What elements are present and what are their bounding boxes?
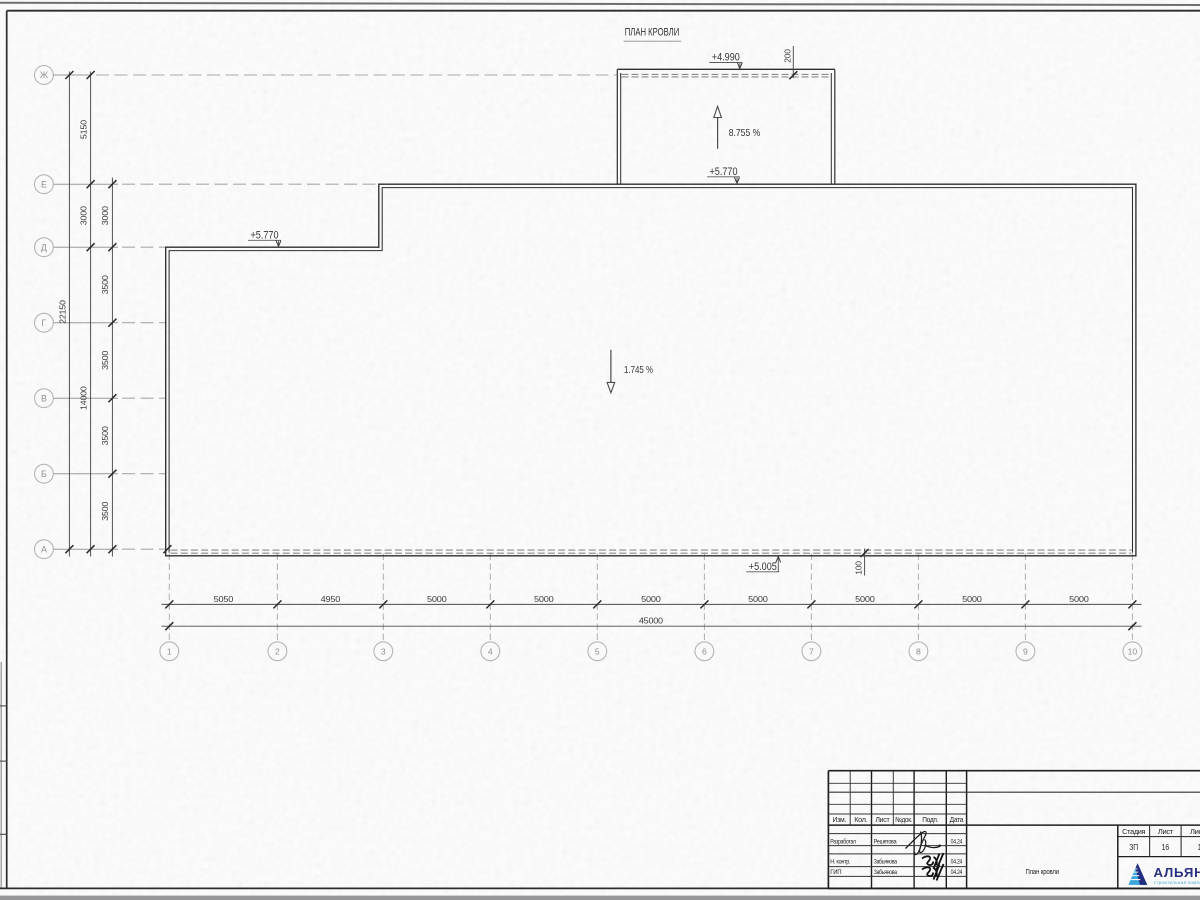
- svg-text:ЗП: ЗП: [1129, 843, 1138, 852]
- svg-text:5150: 5150: [80, 119, 89, 139]
- svg-text:строительная компания: строительная компания: [1154, 880, 1200, 885]
- svg-text:100: 100: [854, 560, 863, 574]
- svg-text:В: В: [41, 393, 47, 403]
- svg-text:10: 10: [1128, 647, 1138, 657]
- svg-text:Лист: Лист: [875, 815, 890, 824]
- svg-text:3500: 3500: [101, 275, 110, 295]
- svg-text:2: 2: [275, 647, 280, 657]
- svg-text:5: 5: [595, 647, 600, 657]
- svg-text:1: 1: [167, 647, 172, 657]
- svg-text:Изм.: Изм.: [833, 815, 847, 824]
- svg-text:16: 16: [1162, 843, 1170, 852]
- svg-text:Д: Д: [41, 242, 47, 252]
- svg-text:5000: 5000: [427, 595, 447, 604]
- svg-text:Лис: Лис: [1190, 829, 1200, 836]
- svg-text:1.745 %: 1.745 %: [624, 365, 653, 376]
- svg-text:Забьянова: Забьянова: [874, 857, 898, 865]
- svg-text:План кровли: План кровли: [1025, 869, 1059, 876]
- svg-text:5000: 5000: [855, 595, 875, 604]
- svg-text:5000: 5000: [962, 595, 982, 604]
- svg-text:3: 3: [381, 647, 386, 657]
- svg-text:8: 8: [916, 647, 921, 657]
- svg-text:Б: Б: [41, 469, 47, 479]
- svg-text:22150: 22150: [59, 300, 68, 324]
- svg-text:4: 4: [488, 647, 493, 657]
- svg-text:14000: 14000: [80, 386, 89, 410]
- svg-text:04.24: 04.24: [951, 858, 963, 865]
- svg-text:+5.005: +5.005: [749, 561, 777, 573]
- svg-text:АЛЬЯНС: АЛЬЯНС: [1154, 865, 1200, 880]
- svg-text:Кол.: Кол.: [854, 815, 867, 824]
- svg-text:+5.770: +5.770: [710, 166, 738, 178]
- svg-text:3000: 3000: [80, 205, 89, 225]
- svg-text:5000: 5000: [1069, 595, 1089, 604]
- svg-text:5050: 5050: [214, 595, 234, 604]
- svg-text:Подп.: Подп.: [922, 815, 938, 824]
- svg-text:ПЛАН КРОВЛИ: ПЛАН КРОВЛИ: [625, 27, 680, 39]
- svg-text:9: 9: [1023, 647, 1028, 657]
- svg-text:3500: 3500: [101, 501, 110, 521]
- svg-text:5000: 5000: [748, 595, 768, 604]
- svg-text:7: 7: [809, 647, 814, 657]
- svg-text:45000: 45000: [639, 617, 664, 626]
- svg-text:8.755 %: 8.755 %: [729, 128, 761, 139]
- svg-text:Забьянова: Забьянова: [874, 868, 898, 876]
- svg-text:ГИП: ГИП: [830, 869, 842, 876]
- svg-text:3500: 3500: [101, 426, 110, 446]
- svg-text:+5.770: +5.770: [251, 229, 279, 241]
- svg-text:04.24: 04.24: [951, 869, 963, 876]
- svg-text:4950: 4950: [321, 595, 341, 604]
- svg-text:Н. контр.: Н. контр.: [830, 858, 850, 865]
- svg-text:+4.990: +4.990: [712, 52, 740, 64]
- svg-text:Стадия: Стадия: [1122, 829, 1146, 836]
- svg-text:200: 200: [783, 48, 792, 62]
- svg-text:Решетова: Решетова: [874, 839, 897, 846]
- svg-text:3000: 3000: [101, 205, 110, 225]
- svg-text:Ж: Ж: [40, 70, 48, 80]
- svg-text:Разработал: Разработал: [830, 838, 856, 846]
- svg-text:Г: Г: [42, 318, 47, 328]
- svg-text:04.24: 04.24: [951, 839, 963, 846]
- svg-text:Лист: Лист: [1158, 829, 1174, 836]
- svg-text:3500: 3500: [101, 350, 110, 370]
- svg-text:Дата: Дата: [950, 815, 964, 824]
- svg-text:№док.: №док.: [895, 815, 912, 824]
- svg-text:А: А: [41, 544, 47, 554]
- svg-text:5000: 5000: [641, 595, 661, 604]
- svg-text:Е: Е: [41, 179, 47, 189]
- svg-text:5000: 5000: [534, 595, 554, 604]
- svg-text:6: 6: [702, 647, 707, 657]
